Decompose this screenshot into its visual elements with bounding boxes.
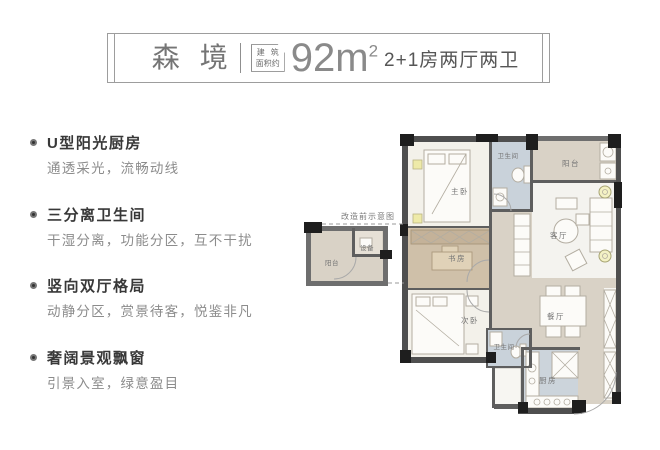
pre-renovation-inset: [304, 222, 392, 286]
area-label-line1: 建筑: [257, 48, 285, 58]
feature-item-kitchen: U型阳光厨房 通透采光，流畅动线: [30, 132, 290, 178]
feature-item-halls: 竖向双厅格局 动静分区，赏景待客，悦鉴非凡: [30, 275, 290, 321]
area-superscript: 2: [369, 42, 378, 61]
title-banner: 森境 建筑 面积约 92m2 2+1房两厅两卫: [107, 33, 550, 83]
title-divider: [240, 43, 241, 73]
bay-window-strip: [604, 290, 616, 398]
room-label-study: 书房: [448, 253, 466, 263]
bullet-icon: [30, 354, 37, 361]
room-label-master-bedroom: 主卧: [451, 186, 469, 196]
corridor-cabinet: [514, 214, 530, 276]
feature-desc: 干湿分离，功能分区，互不干扰: [47, 232, 290, 250]
room-label-balcony-top: 阳台: [562, 158, 580, 168]
feature-title: 竖向双厅格局: [47, 275, 146, 296]
layout-spec: 2+1房两厅两卫: [384, 45, 519, 72]
room-label-balcony-small: 阳台: [325, 258, 339, 267]
area-number: 92m: [291, 36, 369, 80]
banner-accent-line-right: [542, 34, 543, 82]
room-label-living-room: 客厅: [550, 230, 568, 240]
room-label-second-bedroom: 次卧: [461, 315, 479, 325]
room-label-kitchen: 厨房: [539, 375, 557, 385]
area-label-line2: 面积约: [256, 59, 280, 69]
feature-title: 奢阔景观飘窗: [47, 347, 146, 368]
ac-marker-icon: [599, 250, 611, 262]
pre-renovation-note: 改造前示意图: [341, 211, 395, 221]
feature-desc: 通透采光，流畅动线: [47, 160, 290, 178]
feature-item-baywindow: 奢阔景观飘窗 引景入室，绿意盈目: [30, 347, 290, 393]
balcony-washer: [600, 143, 616, 179]
bullet-icon: [30, 139, 37, 146]
bullet-icon: [30, 282, 37, 289]
bullet-icon: [30, 211, 37, 218]
feature-desc: 引景入室，绿意盈目: [47, 375, 290, 393]
room-label-bathroom-top: 卫生间: [498, 151, 519, 160]
ac-marker-icon: [599, 186, 611, 198]
area-label-box: 建筑 面积约: [251, 44, 285, 72]
area-value: 92m2: [291, 38, 378, 78]
room-label-equipment: 设备: [360, 243, 374, 252]
room-label-dining-room: 餐厅: [547, 312, 565, 321]
feature-list: U型阳光厨房 通透采光，流畅动线 三分离卫生间 干湿分离，功能分区，互不干扰 竖…: [30, 132, 290, 418]
feature-item-bathroom: 三分离卫生间 干湿分离，功能分区，互不干扰: [30, 204, 290, 250]
feature-desc: 动静分区，赏景待客，悦鉴非凡: [47, 303, 290, 321]
banner-accent-line-left: [114, 34, 115, 82]
plan-title: 森境: [152, 44, 248, 72]
feature-title: 三分离卫生间: [47, 204, 146, 225]
room-label-bathroom-bottom: 卫生间: [494, 342, 515, 351]
feature-title: U型阳光厨房: [47, 132, 142, 153]
floorplan: 主卧 卫生间 阳台 客厅 书房 次卧 餐厅 卫生间 厨房 阳台 设备 改造前示意…: [296, 126, 644, 444]
